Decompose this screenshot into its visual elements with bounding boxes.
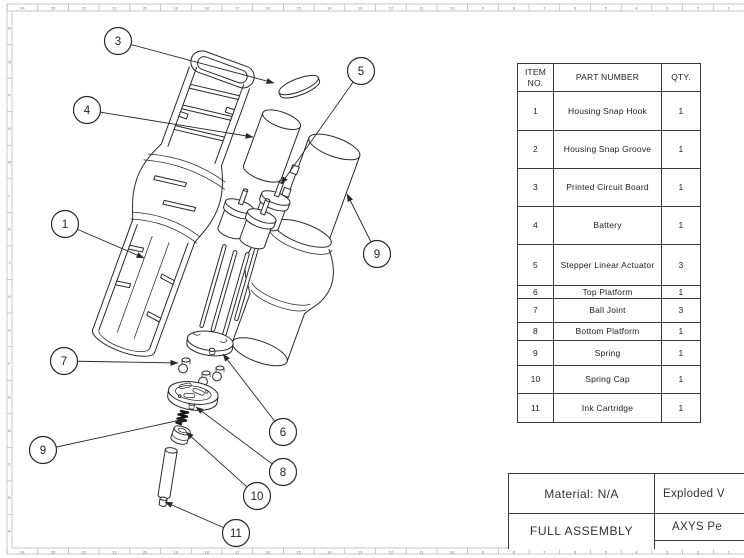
bom-row: 8 Bottom Platform 1 bbox=[518, 323, 701, 341]
bom-header-row: ITEM NO. PART NUMBER QTY. bbox=[518, 64, 701, 92]
svg-text:1: 1 bbox=[62, 219, 68, 231]
bom-cell-item: 1 bbox=[518, 92, 554, 131]
svg-text:L: L bbox=[8, 193, 11, 198]
svg-text:N: N bbox=[8, 126, 11, 131]
svg-text:20: 20 bbox=[143, 6, 148, 11]
svg-text:C: C bbox=[8, 462, 11, 467]
balloon-10: 10 bbox=[244, 483, 271, 510]
svg-text:F: F bbox=[8, 361, 11, 366]
svg-text:8: 8 bbox=[513, 6, 516, 11]
bom-header-item: ITEM NO. bbox=[518, 64, 554, 92]
bom-cell-qty: 1 bbox=[662, 323, 701, 341]
leader-9-left bbox=[43, 419, 185, 450]
bom-cell-part: Top Platform bbox=[554, 286, 662, 299]
bom-cell-part: Ink Cartridge bbox=[554, 394, 662, 423]
leader-8 bbox=[196, 407, 283, 472]
svg-text:14: 14 bbox=[327, 550, 332, 555]
bom-cell-part: Stepper Linear Actuator bbox=[554, 245, 662, 286]
spring-cap-part bbox=[170, 424, 192, 446]
svg-text:18: 18 bbox=[204, 550, 209, 555]
bom-row: 2 Housing Snap Groove 1 bbox=[518, 131, 701, 169]
bom-cell-qty: 1 bbox=[662, 92, 701, 131]
leader-4 bbox=[87, 110, 253, 137]
bom-cell-qty: 1 bbox=[662, 366, 701, 394]
bom-row: 7 Ball Joint 3 bbox=[518, 299, 701, 323]
svg-text:12: 12 bbox=[389, 6, 394, 11]
svg-text:24: 24 bbox=[20, 550, 25, 555]
svg-text:10: 10 bbox=[450, 550, 455, 555]
bom-row: 4 Battery 1 bbox=[518, 207, 701, 245]
bom-row: 9 Spring 1 bbox=[518, 341, 701, 366]
svg-text:19: 19 bbox=[174, 6, 179, 11]
svg-text:12: 12 bbox=[389, 550, 394, 555]
stepper-actuators-part bbox=[214, 176, 296, 252]
svg-text:A: A bbox=[8, 529, 11, 534]
bom-cell-item: 2 bbox=[518, 131, 554, 169]
bom-cell-part: Bottom Platform bbox=[554, 323, 662, 341]
svg-text:19: 19 bbox=[174, 550, 179, 555]
svg-text:11: 11 bbox=[230, 528, 242, 540]
svg-text:10: 10 bbox=[450, 6, 455, 11]
svg-text:7: 7 bbox=[61, 356, 67, 368]
balloon-3: 3 bbox=[105, 28, 132, 55]
svg-text:P: P bbox=[8, 92, 11, 97]
svg-text:1: 1 bbox=[728, 6, 731, 11]
bom-cell-item: 4 bbox=[518, 207, 554, 245]
bom-table: ITEM NO. PART NUMBER QTY. 1 Housing Snap… bbox=[517, 63, 701, 423]
bom-row: 5 Stepper Linear Actuator 3 bbox=[518, 245, 701, 286]
svg-text:22: 22 bbox=[82, 550, 87, 555]
ruler-top: 242322212019181716151413121110987654321 bbox=[7, 4, 731, 11]
pcb-part bbox=[277, 71, 322, 101]
svg-text:10: 10 bbox=[251, 491, 264, 503]
svg-text:9: 9 bbox=[40, 445, 46, 457]
svg-text:14: 14 bbox=[327, 6, 332, 11]
bom-cell-qty: 1 bbox=[662, 341, 701, 366]
assembly-label: FULL ASSEMBLY bbox=[509, 513, 654, 549]
title-block-divider bbox=[655, 540, 744, 541]
svg-text:B: B bbox=[8, 495, 11, 500]
svg-text:4: 4 bbox=[635, 6, 638, 11]
balloon-9-right: 9 bbox=[364, 241, 391, 268]
bom-cell-qty: 1 bbox=[662, 394, 701, 423]
drawing-sheet: 242322212019181716151413121110987654321 … bbox=[0, 0, 744, 558]
svg-text:21: 21 bbox=[112, 550, 117, 555]
leader-7 bbox=[64, 361, 178, 363]
leader-3 bbox=[118, 41, 274, 83]
svg-text:24: 24 bbox=[20, 6, 25, 11]
bom-header-part: PART NUMBER bbox=[554, 64, 662, 92]
actuator-rods-part bbox=[199, 243, 259, 336]
bom-cell-qty: 1 bbox=[662, 169, 701, 207]
bom-cell-part: Battery bbox=[554, 207, 662, 245]
svg-text:E: E bbox=[8, 394, 11, 399]
svg-text:M: M bbox=[8, 160, 11, 165]
bom-cell-item: 8 bbox=[518, 323, 554, 341]
bom-cell-item: 5 bbox=[518, 245, 554, 286]
bom-cell-item: 10 bbox=[518, 366, 554, 394]
balloon-1: 1 bbox=[52, 211, 79, 238]
bom-cell-item: 9 bbox=[518, 341, 554, 366]
bottom-platform-part bbox=[166, 379, 219, 414]
bom-header-qty: QTY. bbox=[662, 64, 701, 92]
svg-text:3: 3 bbox=[666, 6, 669, 11]
svg-text:22: 22 bbox=[82, 6, 87, 11]
svg-text:18: 18 bbox=[204, 6, 209, 11]
balloon-7: 7 bbox=[51, 348, 78, 375]
bom-cell-part: Housing Snap Groove bbox=[554, 131, 662, 169]
bom-cell-part: Ball Joint bbox=[554, 299, 662, 323]
svg-text:23: 23 bbox=[51, 6, 56, 11]
balloon-11: 11 bbox=[223, 520, 250, 547]
svg-text:2: 2 bbox=[697, 6, 700, 11]
svg-text:J: J bbox=[9, 260, 11, 265]
bom-cell-item: 3 bbox=[518, 169, 554, 207]
svg-text:4: 4 bbox=[84, 105, 91, 117]
svg-text:15: 15 bbox=[297, 6, 302, 11]
bom-cell-qty: 3 bbox=[662, 299, 701, 323]
bom-cell-part: Housing Snap Hook bbox=[554, 92, 662, 131]
svg-text:Q: Q bbox=[8, 59, 11, 64]
balloon-6: 6 bbox=[270, 419, 297, 446]
bom-cell-qty: 1 bbox=[662, 131, 701, 169]
bom-cell-part: Spring bbox=[554, 341, 662, 366]
svg-text:16: 16 bbox=[266, 6, 271, 11]
svg-text:8: 8 bbox=[280, 467, 286, 479]
svg-text:21: 21 bbox=[112, 6, 117, 11]
svg-text:6: 6 bbox=[574, 6, 577, 11]
ink-cartridge-part bbox=[156, 447, 177, 507]
bom-row: 6 Top Platform 1 bbox=[518, 286, 701, 299]
bom-cell-qty: 1 bbox=[662, 207, 701, 245]
svg-text:K: K bbox=[8, 227, 11, 232]
bom-row: 3 Printed Circuit Board 1 bbox=[518, 169, 701, 207]
spring-part bbox=[177, 411, 189, 424]
bom-cell-item: 11 bbox=[518, 394, 554, 423]
bom-row: 1 Housing Snap Hook 1 bbox=[518, 92, 701, 131]
svg-text:23: 23 bbox=[51, 550, 56, 555]
svg-text:D: D bbox=[8, 428, 11, 433]
svg-text:R: R bbox=[8, 25, 11, 30]
bom-cell-item: 6 bbox=[518, 286, 554, 299]
bom-row: 10 Spring Cap 1 bbox=[518, 366, 701, 394]
svg-text:9: 9 bbox=[374, 249, 380, 261]
svg-text:9: 9 bbox=[482, 6, 485, 11]
bom-cell-qty: 3 bbox=[662, 245, 701, 286]
svg-text:3: 3 bbox=[115, 36, 121, 48]
svg-text:17: 17 bbox=[235, 6, 240, 11]
svg-text:17: 17 bbox=[235, 550, 240, 555]
bom-cell-qty: 1 bbox=[662, 286, 701, 299]
balloon-9-left: 9 bbox=[30, 437, 57, 464]
svg-text:16: 16 bbox=[266, 550, 271, 555]
svg-text:5: 5 bbox=[605, 6, 608, 11]
balloon-8: 8 bbox=[270, 459, 297, 486]
bom-row: 11 Ink Cartridge 1 bbox=[518, 394, 701, 423]
svg-text:11: 11 bbox=[419, 6, 424, 11]
svg-text:13: 13 bbox=[358, 6, 363, 11]
svg-text:6: 6 bbox=[280, 427, 286, 439]
bom-cell-part: Spring Cap bbox=[554, 366, 662, 394]
svg-text:20: 20 bbox=[143, 550, 148, 555]
material-label: Material: N/A bbox=[509, 474, 654, 513]
balloon-5: 5 bbox=[348, 58, 375, 85]
project-label: AXYS Pe bbox=[672, 514, 744, 540]
bom-cell-part: Printed Circuit Board bbox=[554, 169, 662, 207]
title-block-divider bbox=[654, 474, 655, 549]
svg-text:15: 15 bbox=[297, 550, 302, 555]
bom-cell-item: 7 bbox=[518, 299, 554, 323]
ruler-left: RQPNMLKJHGFEDCBA bbox=[7, 11, 12, 534]
balloon-4: 4 bbox=[74, 97, 101, 124]
title-block: Material: N/A FULL ASSEMBLY Exploded V A… bbox=[508, 473, 744, 549]
svg-text:7: 7 bbox=[543, 6, 546, 11]
svg-text:H: H bbox=[8, 294, 11, 299]
leader-10 bbox=[186, 432, 257, 496]
svg-text:13: 13 bbox=[358, 550, 363, 555]
svg-text:5: 5 bbox=[358, 66, 364, 78]
drawing-title: Exploded V bbox=[663, 474, 744, 513]
svg-text:G: G bbox=[8, 327, 11, 332]
